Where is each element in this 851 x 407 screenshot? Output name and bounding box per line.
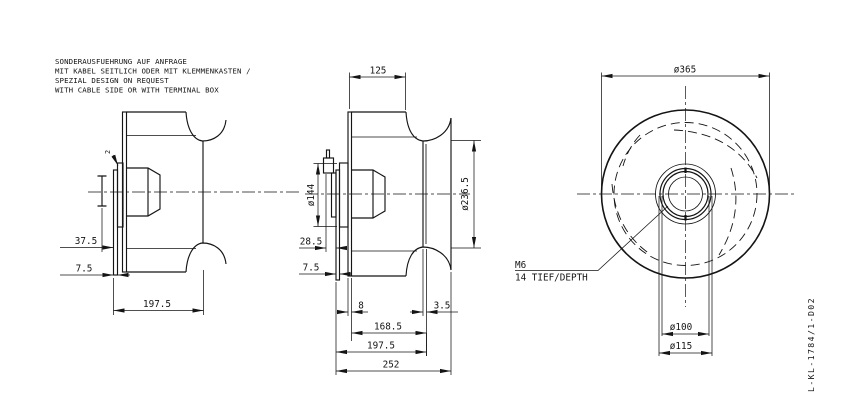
blade-arc [719, 168, 736, 255]
dim-inlet-depth: 125 [350, 66, 406, 111]
extension-lines [423, 249, 427, 356]
cable-gland [324, 158, 334, 173]
hub-circles [656, 164, 716, 224]
blade-hidden-arcs [612, 130, 757, 255]
motor-flange [340, 163, 349, 227]
note-line-1: SONDERAUSFUEHRUNG AUF ANFRAGE [55, 57, 187, 66]
dim-label-28-5: 28.5 [300, 237, 322, 248]
dim-label-100: ø100 [670, 322, 692, 333]
inlet-ring-top [186, 112, 226, 141]
dim-label-37-5: 37.5 [75, 236, 97, 247]
note-line-3: SPEZIAL DESIGN ON REQUEST [55, 76, 169, 85]
dim-label-8: 8 [358, 301, 364, 312]
section-view-middle: 125 ø144 ø236.5 28.5 7.5 [299, 66, 481, 376]
mounting-plate [114, 170, 118, 275]
side-view-left: 2 37.5 7.5 197.5 [60, 112, 302, 315]
dim-backplate-thickness: 8 [338, 278, 369, 341]
dim-label-197-5: 197.5 [143, 299, 171, 310]
dim-label-125: 125 [370, 66, 387, 77]
blade-arc [623, 135, 640, 166]
dim-label-168-5: 168.5 [374, 322, 402, 333]
drawing-sheet: SONDERAUSFUEHRUNG AUF ANFRAGE MIT KABEL … [0, 0, 851, 407]
dim-gap-2: 2 [104, 150, 118, 166]
notes-block: SONDERAUSFUEHRUNG AUF ANFRAGE MIT KABEL … [55, 57, 251, 95]
extension-lines [348, 278, 352, 341]
drawing-number: L-KL-1784/1-D02 [806, 297, 816, 392]
note-line-2: MIT KABEL SEITLICH ODER MIT KLEMMENKASTE… [55, 67, 251, 76]
dim-impeller-depth-left: 197.5 [114, 270, 204, 315]
dim-plate-thickness-mid: 7.5 [299, 263, 352, 275]
thread-label-depth: 14 TIEF/DEPTH [515, 273, 588, 284]
leader-line [515, 206, 668, 271]
motor-hub-step [332, 173, 337, 217]
gap-leader [113, 155, 118, 166]
dim-label-115: ø115 [670, 341, 692, 352]
note-line-4: WITH CABLE SIDE OR WITH TERMINAL BOX [55, 86, 219, 95]
dim-label-252: 252 [383, 360, 400, 371]
dim-label-236-5: ø236.5 [460, 177, 471, 211]
extension-lines [350, 73, 406, 111]
dim-label-gap: 2 [104, 150, 112, 154]
inlet-ring-bottom [186, 243, 226, 272]
dim-plate-thickness-left: 7.5 [60, 264, 130, 276]
dim-label-197-5-mid: 197.5 [367, 341, 395, 352]
thread-callout: M6 14 TIEF/DEPTH [515, 206, 668, 284]
cable-gland-stem [327, 150, 330, 158]
dim-label-7-5-mid: 7.5 [303, 263, 320, 274]
thread-label-m6: M6 [515, 260, 526, 271]
dim-label-3-5: 3.5 [434, 301, 451, 312]
dim-label-7-5: 7.5 [76, 264, 93, 275]
shaft-end-cap [98, 176, 107, 206]
dim-label-144: ø144 [306, 183, 317, 206]
fan-technical-drawing: SONDERAUSFUEHRUNG AUF ANFRAGE MIT KABEL … [0, 0, 851, 407]
dim-depth-inner: 168.5 [352, 322, 427, 334]
front-view: ø365 ø100 ø115 M6 14 TIEF/DEPTH [515, 65, 795, 357]
dim-hub-offset: 37.5 [60, 208, 114, 252]
dim-label-365: ø365 [674, 65, 696, 76]
